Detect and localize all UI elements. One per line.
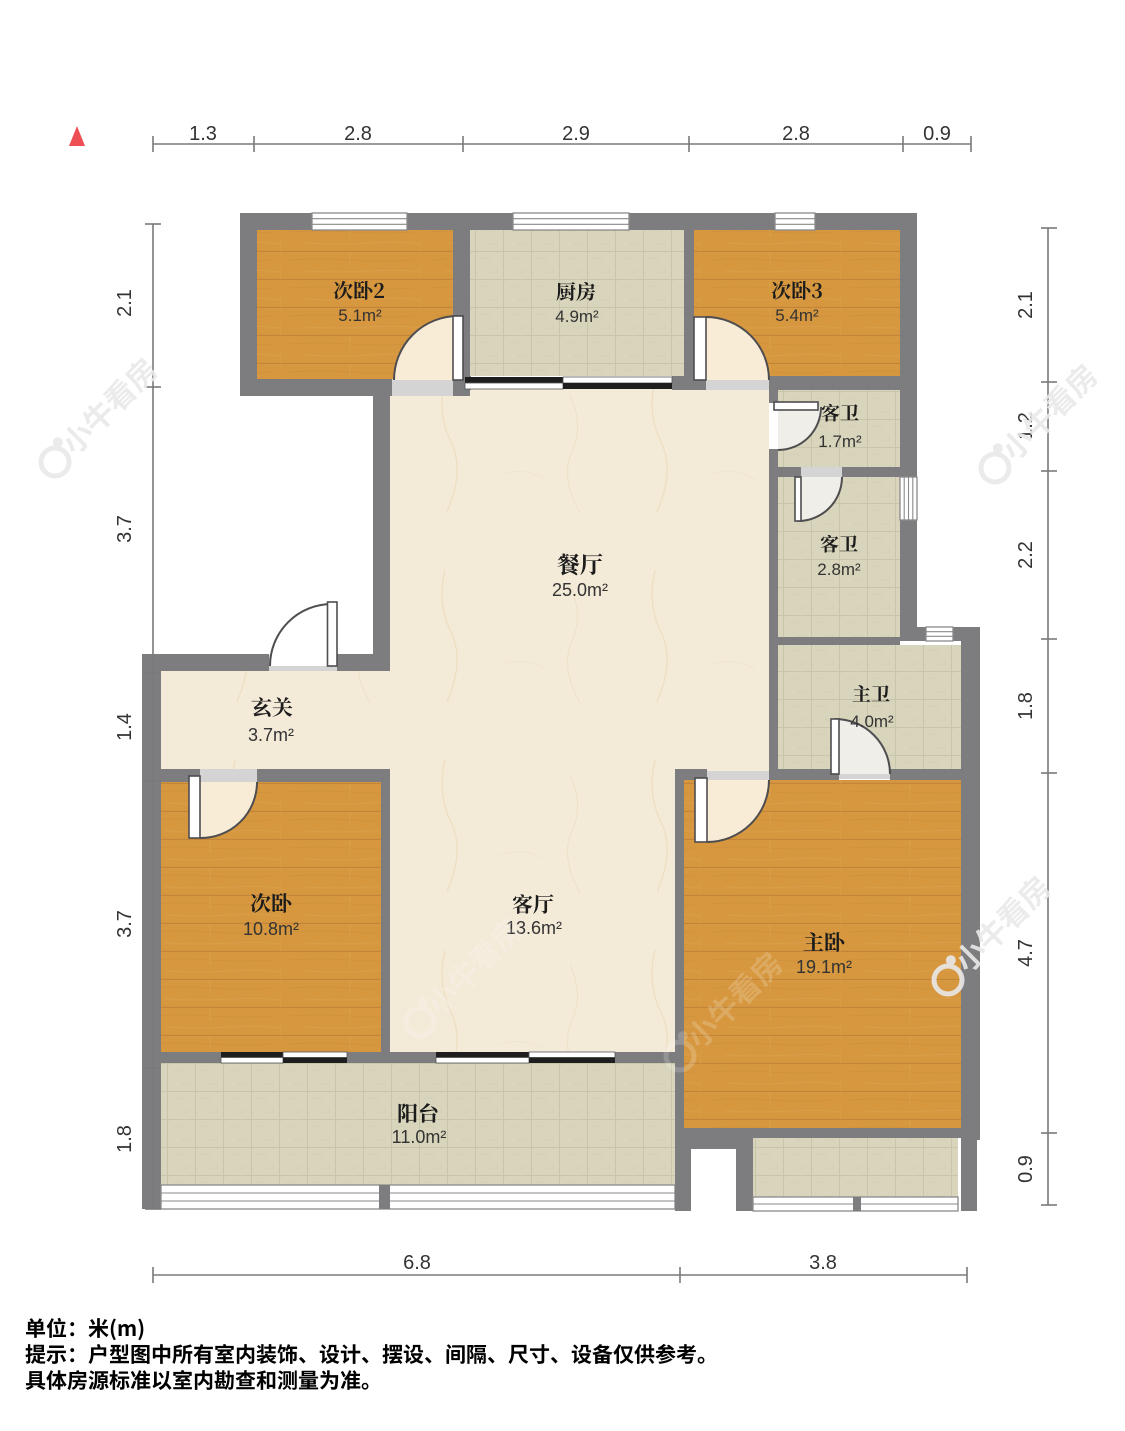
- svg-text:6.8: 6.8: [403, 1252, 431, 1274]
- svg-text:0.9: 0.9: [1015, 1155, 1037, 1183]
- svg-text:0.9: 0.9: [923, 123, 951, 145]
- svg-text:19.1m²: 19.1m²: [796, 957, 852, 977]
- svg-text:5.1m²: 5.1m²: [338, 306, 382, 325]
- svg-text:3.7: 3.7: [114, 515, 136, 543]
- svg-text:1.7m²: 1.7m²: [818, 432, 862, 451]
- svg-text:2.9: 2.9: [562, 123, 590, 145]
- svg-text:10.8m²: 10.8m²: [243, 919, 299, 939]
- svg-text:2.8: 2.8: [344, 123, 372, 145]
- svg-text:2.1: 2.1: [114, 289, 136, 317]
- svg-text:1.8: 1.8: [114, 1125, 136, 1153]
- svg-text:1.4: 1.4: [114, 713, 136, 741]
- svg-text:11.0m²: 11.0m²: [392, 1127, 447, 1147]
- svg-text:2.8m²: 2.8m²: [817, 560, 861, 579]
- svg-text:2.8: 2.8: [782, 123, 810, 145]
- svg-text:4.0m²: 4.0m²: [850, 712, 894, 731]
- svg-text:4.9m²: 4.9m²: [555, 307, 599, 326]
- svg-text:3.7: 3.7: [114, 910, 136, 938]
- svg-text:3.8: 3.8: [809, 1252, 837, 1274]
- svg-text:1.3: 1.3: [189, 123, 217, 145]
- svg-text:5.4m²: 5.4m²: [775, 306, 819, 325]
- svg-text:2.1: 2.1: [1015, 291, 1037, 319]
- svg-text:1.8: 1.8: [1015, 692, 1037, 720]
- svg-text:4.7: 4.7: [1015, 939, 1037, 967]
- svg-text:25.0m²: 25.0m²: [552, 580, 608, 600]
- svg-text:3.7m²: 3.7m²: [248, 725, 294, 745]
- svg-text:2.2: 2.2: [1015, 541, 1037, 569]
